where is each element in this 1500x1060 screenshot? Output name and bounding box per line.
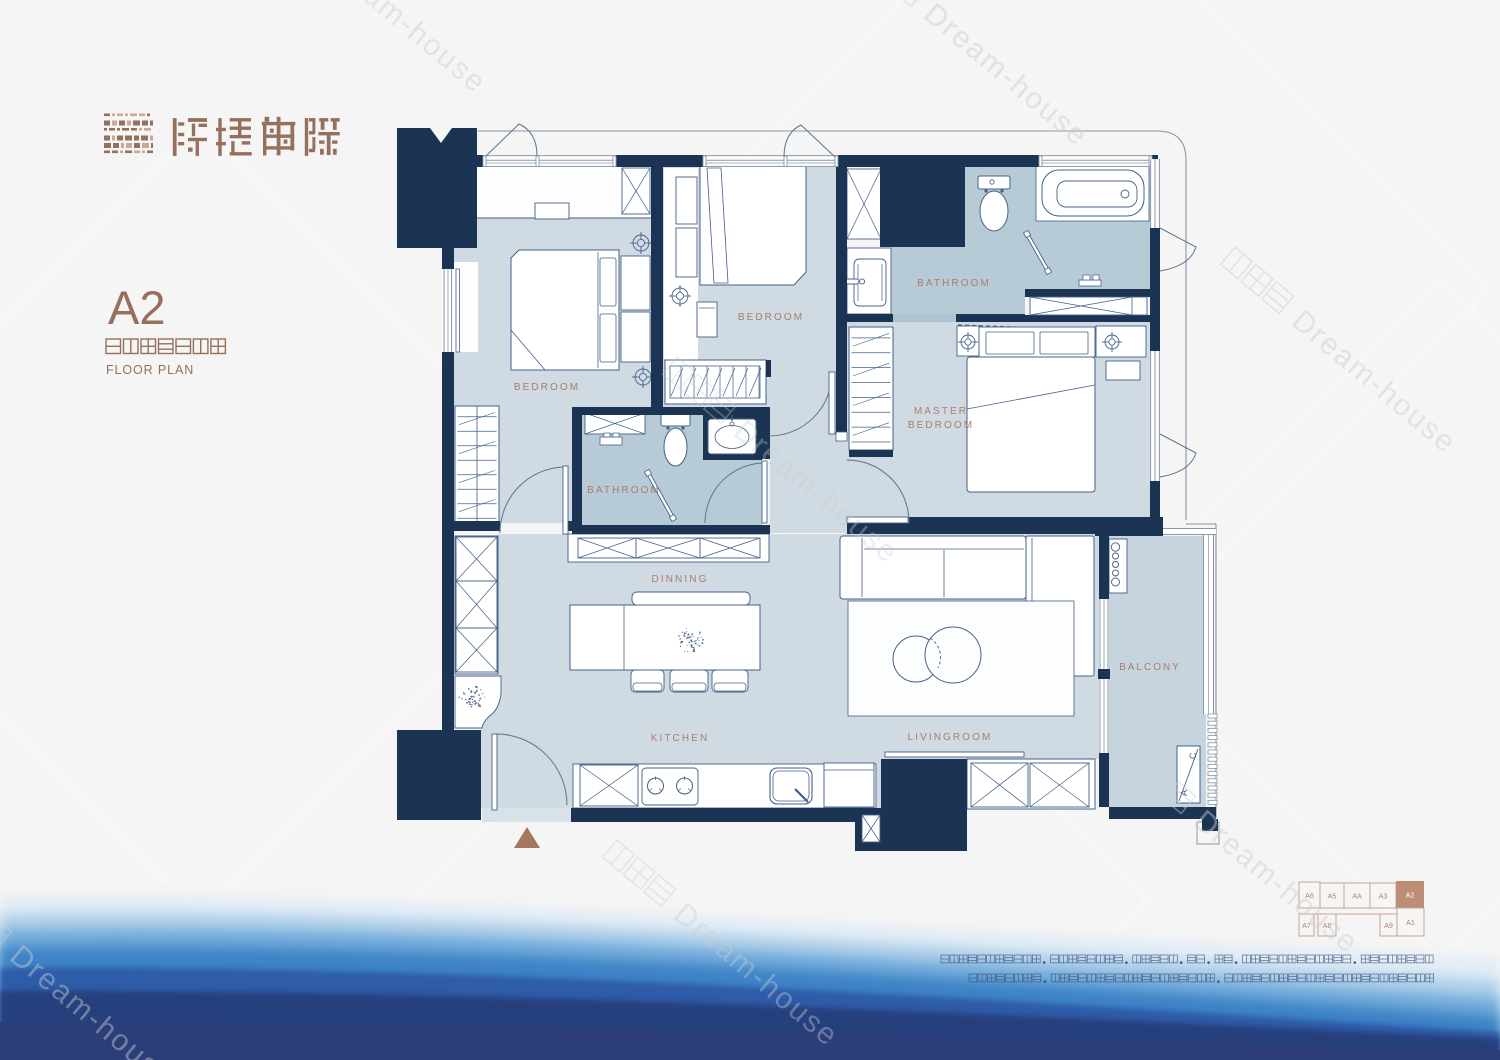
svg-text:BEDROOM: BEDROOM (738, 312, 804, 323)
svg-text:A9: A9 (1384, 921, 1393, 930)
svg-text:KITCHEN: KITCHEN (651, 733, 710, 744)
svg-text:MASTER: MASTER (914, 406, 968, 417)
svg-text:BATHROOM: BATHROOM (917, 278, 991, 289)
svg-text:LIVINGROOM: LIVINGROOM (908, 732, 993, 743)
svg-text:BALCONY: BALCONY (1119, 662, 1181, 673)
svg-text:BEDROOM: BEDROOM (908, 420, 974, 431)
svg-text:A1: A1 (1406, 918, 1415, 927)
svg-text:BEDROOM: BEDROOM (514, 382, 580, 393)
svg-text:A5: A5 (1328, 892, 1337, 901)
svg-text:C: C (1188, 752, 1198, 759)
svg-text:BATHROOM: BATHROOM (587, 485, 661, 496)
svg-text:DINNING: DINNING (652, 574, 709, 585)
svg-text:A3: A3 (1379, 892, 1388, 901)
svg-text:A2: A2 (1406, 891, 1415, 900)
svg-text:AA: AA (1352, 892, 1362, 901)
svg-text:A2: A2 (108, 281, 166, 334)
svg-text:FLOOR PLAN: FLOOR PLAN (106, 363, 194, 377)
